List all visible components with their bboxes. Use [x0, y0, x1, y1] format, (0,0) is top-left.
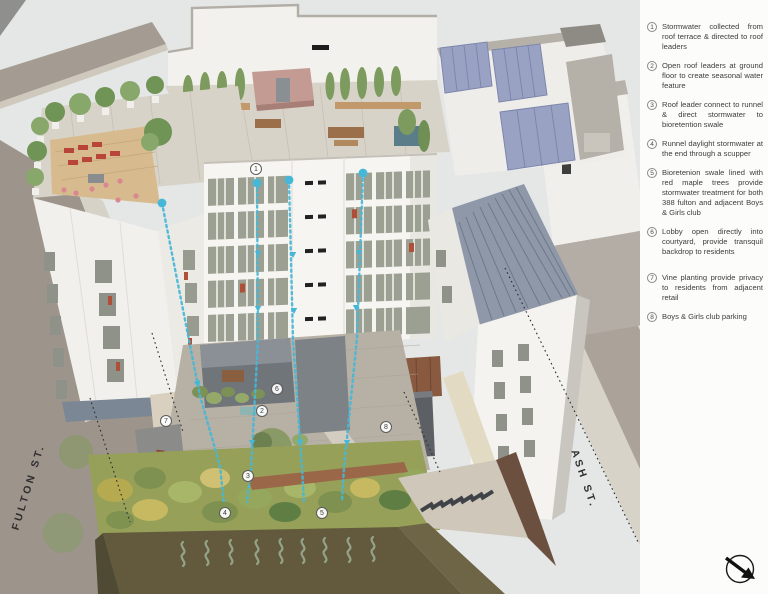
- legend-item-7: 7 Vine planting provide privacy to resid…: [647, 273, 763, 303]
- legend-item-5: 5 Bioretenion swale lined with red maple…: [647, 168, 763, 218]
- legend-num-5: 5: [647, 168, 657, 178]
- main-facade: [204, 154, 437, 347]
- marker-6-label: 6: [275, 386, 279, 393]
- legend-item-1: 1 Stormwater collected from roof terrace…: [647, 22, 763, 52]
- legend-item-8: 8 Boys & Girls club parking: [647, 312, 763, 322]
- north-arrow-icon: [718, 548, 764, 590]
- marker-7-label: 7: [164, 418, 168, 425]
- marker-8-label: 8: [384, 424, 388, 431]
- rendering-canvas: 1 2 3 4 5 6 7 8 FULTON ST. ASH ST.: [0, 0, 640, 594]
- legend-text-3: Roof leader connect to runnel & direct s…: [662, 100, 763, 130]
- marker-4-label: 4: [223, 510, 227, 517]
- legend-text-6: Lobby open directly into courtyard, prov…: [662, 227, 763, 257]
- legend-num-2: 2: [647, 61, 657, 71]
- legend-num-4: 4: [647, 139, 657, 149]
- legend-item-3: 3 Roof leader connect to runnel & direct…: [647, 100, 763, 130]
- legend-num-8: 8: [647, 312, 657, 322]
- marker-3-label: 3: [246, 473, 250, 480]
- legend-num-7: 7: [647, 273, 657, 283]
- legend-text-5: Bioretenion swale lined with red maple t…: [662, 168, 763, 218]
- solar-roof: [437, 24, 628, 176]
- marker-5-label: 5: [320, 510, 324, 517]
- legend-panel: 1 Stormwater collected from roof terrace…: [640, 0, 768, 594]
- marker-8: 8: [380, 421, 392, 433]
- marker-4: 4: [219, 507, 231, 519]
- legend-num-6: 6: [647, 227, 657, 237]
- marker-1: 1: [250, 163, 262, 175]
- legend-text-4: Runnel daylight stormwater at the end th…: [662, 139, 763, 159]
- legend-item-6: 6 Lobby open directly into courtyard, pr…: [647, 227, 763, 257]
- marker-3: 3: [242, 470, 254, 482]
- legend-text-8: Boys & Girls club parking: [662, 312, 763, 322]
- legend-num-1: 1: [647, 22, 657, 32]
- legend-item-4: 4 Runnel daylight stormwater at the end …: [647, 139, 763, 159]
- legend-text-7: Vine planting provide privacy to residen…: [662, 273, 763, 303]
- legend-item-2: 2 Open roof leaders at ground floor to c…: [647, 61, 763, 91]
- marker-5: 5: [316, 507, 328, 519]
- marker-1-label: 1: [254, 166, 258, 173]
- marker-2: 2: [256, 405, 268, 417]
- legend-text-1: Stormwater collected from roof terrace &…: [662, 22, 763, 52]
- marker-2-label: 2: [260, 408, 264, 415]
- marker-6: 6: [271, 383, 283, 395]
- axonometric-rendering: [0, 0, 640, 594]
- legend-text-2: Open roof leaders at ground floor to cre…: [662, 61, 763, 91]
- marker-7: 7: [160, 415, 172, 427]
- bioretention-swale: [88, 440, 440, 542]
- legend-num-3: 3: [647, 100, 657, 110]
